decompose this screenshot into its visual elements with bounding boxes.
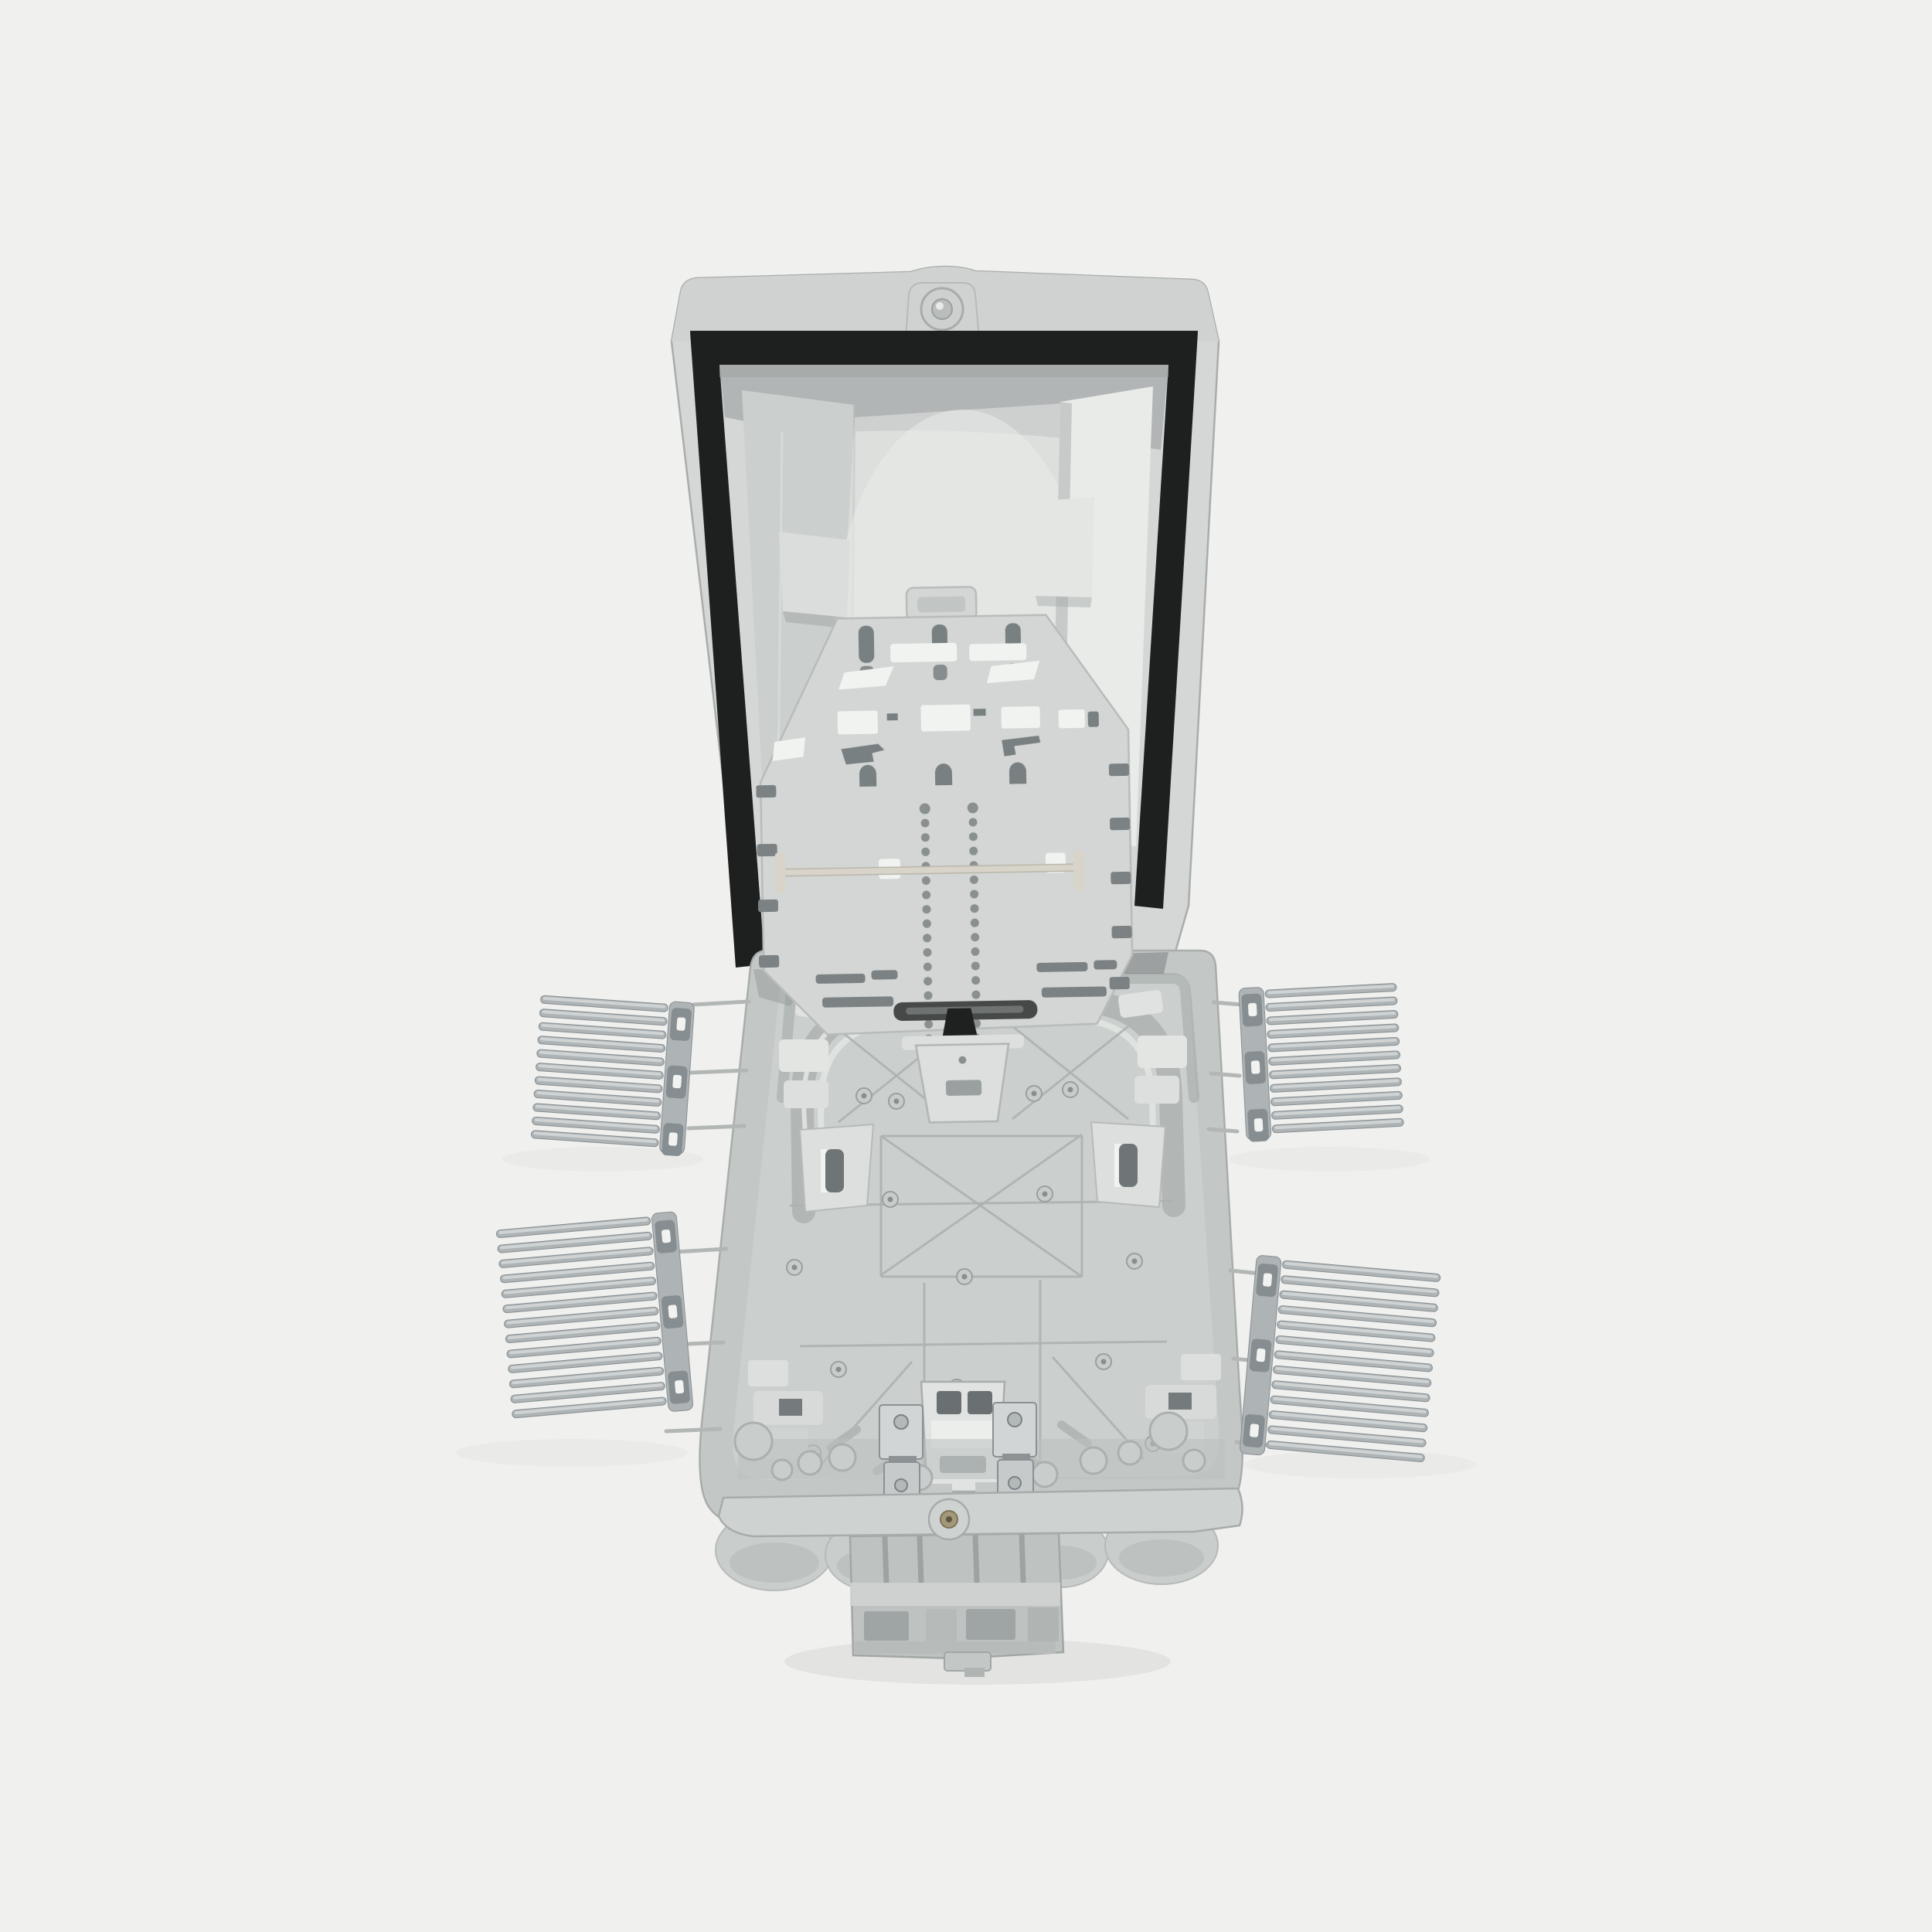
tray-edge-notch — [1111, 872, 1131, 884]
screw-boss-center — [1132, 1259, 1138, 1264]
wall-clip — [784, 1080, 828, 1108]
screw-boss-center — [1043, 1192, 1048, 1197]
tray-slot — [1088, 712, 1099, 727]
clamp-screw — [895, 1479, 907, 1492]
rod-end — [1073, 851, 1085, 891]
bracket-slot — [1168, 1393, 1192, 1410]
wall-clip — [1138, 1036, 1187, 1068]
clamp-gap — [1002, 1454, 1030, 1460]
trunk-band — [850, 1583, 1060, 1606]
comb-clip-hole — [668, 1304, 677, 1318]
tray-edge-notch — [1109, 764, 1129, 776]
tray-edge-notch — [759, 955, 779, 968]
tray-arch-slot — [935, 764, 952, 785]
screw-boss-center — [836, 1367, 842, 1372]
comb-clip-hole — [1248, 1003, 1257, 1017]
tray-bar — [969, 643, 1026, 661]
sprue-wire — [1209, 1129, 1237, 1131]
photo-canvas — [0, 0, 1932, 1932]
wall-clip — [1134, 1076, 1179, 1104]
tray-cutout — [1059, 709, 1085, 729]
screw-boss-center — [792, 1265, 798, 1270]
clamp-gap — [889, 1456, 917, 1462]
trunk-rib — [975, 1535, 977, 1581]
port-tower — [1118, 1441, 1141, 1464]
tray-edge-notch — [1110, 818, 1130, 830]
comb-clip-hole — [1254, 1118, 1264, 1132]
clamp-screw — [894, 1415, 908, 1429]
comb-clip-hole — [1256, 1349, 1265, 1362]
port-tower — [1183, 1450, 1205, 1471]
gasket-top — [690, 331, 1198, 365]
tray-arch-slot — [859, 765, 876, 787]
shadow — [1229, 1147, 1430, 1172]
comb-clip-hole — [1263, 1273, 1272, 1287]
port-tower — [829, 1444, 855, 1471]
tray-cutout — [920, 704, 971, 731]
sprue-wire — [1213, 1002, 1242, 1005]
corner-bracket — [1181, 1354, 1221, 1380]
port-tower — [1080, 1447, 1107, 1474]
tray-tab-slot — [917, 597, 965, 613]
port-tower — [1032, 1462, 1057, 1487]
tray-vent-slot — [815, 974, 865, 984]
bracket-slot — [825, 1149, 844, 1192]
tray-edge-notch — [758, 900, 778, 912]
tray-bar — [890, 643, 957, 662]
trunk-foot-notch — [964, 1668, 985, 1677]
tray-cutout — [1001, 706, 1039, 729]
wall-clip — [779, 1039, 828, 1072]
lid-left-tab — [779, 532, 850, 617]
clamp-screw — [1009, 1477, 1021, 1489]
port-tower — [1150, 1413, 1187, 1450]
trunk-recess — [966, 1609, 1015, 1640]
screw-boss-center — [1101, 1359, 1107, 1365]
sprue-wire — [689, 1126, 744, 1128]
lobe-shade — [1119, 1539, 1204, 1577]
comb-clip-hole — [1250, 1423, 1259, 1437]
tray-arch-slot — [1009, 762, 1026, 784]
rim-screw-center — [946, 1516, 952, 1522]
port-tower — [772, 1460, 792, 1480]
port-tower — [735, 1423, 772, 1460]
bracket-slot — [946, 1080, 981, 1096]
trunk-rib — [1022, 1534, 1023, 1581]
comb-clip-hole — [668, 1132, 678, 1146]
tray-edge-notch — [1110, 977, 1130, 989]
product-photo: Light grey plastic fiber optic distribut… — [0, 0, 1932, 1932]
rod-end — [775, 853, 786, 893]
latch-slot — [937, 1391, 961, 1414]
port-tower — [798, 1451, 821, 1475]
comb-clip-hole — [1251, 1060, 1260, 1074]
sprue-wire — [691, 1070, 747, 1073]
tray-vent-slot — [1042, 986, 1107, 997]
bracket-slot — [779, 1399, 802, 1416]
tray-vent-slot — [1094, 960, 1117, 970]
latch-slot — [968, 1391, 992, 1414]
tray-vent-slot — [871, 970, 897, 980]
base-front-rim — [719, 1488, 1243, 1536]
tray-slot — [887, 713, 898, 720]
trunk-recess — [864, 1611, 909, 1641]
trunk-step — [1028, 1607, 1059, 1641]
tray-edge-notch — [1111, 926, 1131, 938]
lobe-shade — [730, 1543, 819, 1583]
shadow — [456, 1439, 688, 1467]
tray-slot — [934, 665, 947, 680]
screw-boss-center — [962, 1274, 968, 1280]
tray-slot — [859, 626, 875, 663]
sprue-wire — [1211, 1073, 1240, 1076]
bracket-slot — [1119, 1144, 1138, 1187]
tray-vent-slot — [1036, 962, 1087, 972]
screw-boss-center — [1068, 1087, 1073, 1093]
corner-bracket — [748, 1360, 788, 1386]
trunk-rib — [885, 1538, 886, 1583]
trunk-step — [926, 1609, 957, 1641]
screw-boss-center — [888, 1197, 893, 1202]
lid-right-tab — [1034, 497, 1094, 597]
lid-right-tab-shadow — [1036, 596, 1092, 607]
comb-clip-hole — [662, 1230, 671, 1243]
screw-boss-center — [894, 1099, 900, 1104]
tray-edge-notch — [757, 844, 777, 856]
screw-boss-center — [1032, 1091, 1037, 1097]
screw-highlight — [936, 302, 944, 310]
screw-boss-center — [862, 1094, 867, 1099]
clamp-plate — [993, 1403, 1036, 1457]
sprue-wire — [666, 1429, 720, 1431]
comb-clip-hole — [672, 1075, 682, 1089]
trunk-rib — [920, 1536, 921, 1583]
tray-cutout — [838, 711, 879, 735]
clamp-plate — [879, 1405, 923, 1459]
comb-clip-hole — [676, 1017, 685, 1031]
tray-vent-slot — [822, 996, 893, 1008]
tray-edge-notch — [756, 785, 776, 798]
tray-slot — [974, 709, 986, 716]
comb-clip-hole — [675, 1380, 684, 1394]
clamp-screw — [1008, 1413, 1022, 1427]
